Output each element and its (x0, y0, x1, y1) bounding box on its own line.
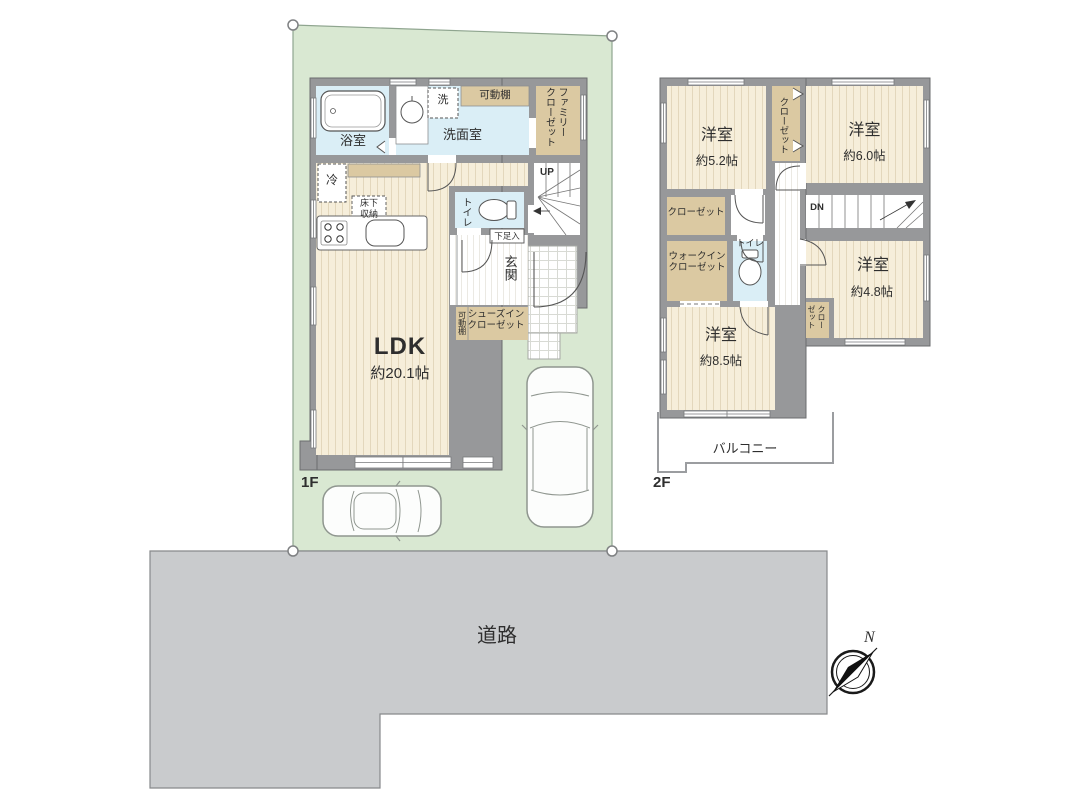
compass-icon (829, 648, 877, 696)
compass-north-label: N (864, 628, 875, 647)
room-6-0-size: 約6.0帖 (806, 149, 923, 164)
toilet2-icon (739, 250, 761, 285)
toilet2-label: トイレ (733, 238, 767, 249)
stairs-up-label: UP (534, 167, 560, 179)
underfloor-storage-label: 床下 収納 (352, 198, 386, 220)
bathtub (321, 91, 385, 131)
room-4-8-label: 洋室 (836, 256, 910, 275)
landing-floor (731, 195, 765, 235)
toilet1-label: トイレ (459, 193, 471, 231)
bath-label: 浴室 (317, 133, 389, 149)
washer-label: 洗 (428, 94, 458, 107)
entrance-label: 玄関 (502, 247, 518, 289)
balcony-label: バルコニー (690, 441, 800, 457)
room-5-2-label: 洋室 (667, 126, 767, 145)
closet-b-label: クローゼット (667, 207, 725, 218)
room-8-5-label: 洋室 (667, 326, 775, 345)
cupboard (348, 164, 420, 177)
room-8-5-size: 約8.5帖 (667, 354, 775, 369)
shoes-in-closet-label: シューズイン クローゼット (464, 309, 528, 332)
kitchen-counter (317, 216, 427, 250)
road-area (150, 551, 827, 788)
hall-floor (775, 163, 800, 305)
stairs-down-label: DN (804, 202, 830, 213)
floor2-label: 2F (653, 474, 671, 492)
movable-shelf-label: 可動棚 (461, 89, 529, 102)
kitchen-sink-icon (366, 220, 404, 246)
washroom-label: 洗面室 (396, 127, 529, 143)
room-5-2-size: 約5.2帖 (667, 154, 767, 169)
family-closet-label: ファミリー クローゼット (542, 87, 567, 159)
toilet1-icon (479, 200, 516, 221)
car-1 (323, 481, 441, 541)
floor-plan-canvas: 浴室 洗 可動棚 ファミリー クローゼット 洗面室 冷 床下 収納 トイレ UP… (0, 0, 1080, 810)
walk-in-closet-label: ウォークイン クローゼット (667, 251, 727, 274)
car-2 (522, 367, 598, 527)
closet-a-label: クローゼット (777, 89, 788, 161)
fridge-label: 冷 (318, 173, 346, 187)
ldk-size-label: 約20.1帖 (330, 365, 470, 383)
ldk-label: LDK (330, 333, 470, 362)
room-6-0-label: 洋室 (806, 121, 923, 140)
floor1-label: 1F (301, 474, 319, 492)
closet-c-label: クロー ゼット (806, 305, 826, 339)
shoe-box-label: 下足入 (490, 231, 524, 241)
road-label: 道路 (465, 624, 529, 648)
room-4-8-size: 約4.8帖 (832, 285, 912, 300)
